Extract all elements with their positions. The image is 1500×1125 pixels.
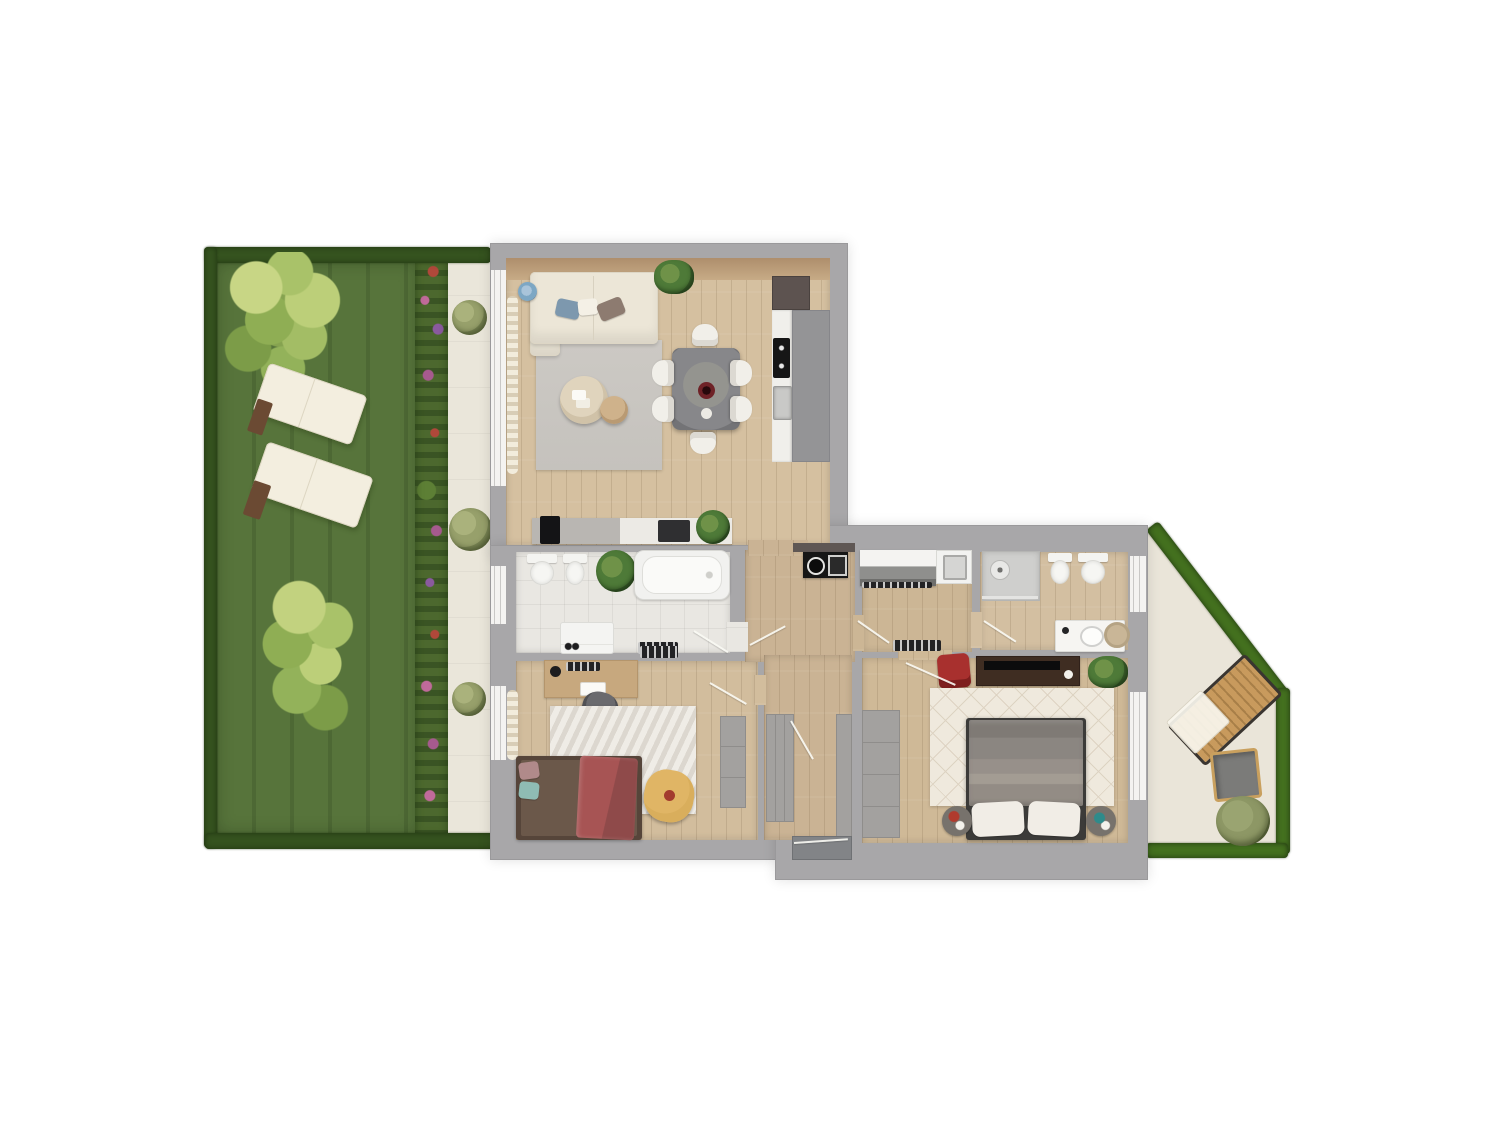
living-plant-shelf [654,260,694,294]
utility-shelf [893,640,941,651]
hall-counter-steel-square [828,555,847,576]
ensuite-bidet-bowl [1051,560,1070,584]
window-master-terrace [1130,692,1146,800]
opening-bathroom-1-door [726,622,748,652]
kitchen-cooktop [773,338,790,378]
path-bush-top [452,300,487,335]
nightstand-left [942,806,972,836]
nightstand-right [1086,806,1116,836]
ensuite-bidet [1048,553,1072,585]
window-bathroom-1 [491,566,506,624]
single-bed-blanket-red [576,756,638,841]
double-bed-duvet [969,720,1083,806]
terrace-hedge-right [1276,688,1290,854]
bedroom-2-radiator [640,646,678,658]
toilet [527,554,557,586]
hall-counter-burner [807,557,825,575]
hall-backwall-strip [793,543,855,552]
path-bush-bottom [452,682,486,716]
flower-border [415,260,448,836]
path-bush-middle [449,508,492,551]
bedroom-2-wardrobe [720,716,746,808]
bidet-bowl [566,561,585,585]
dining-chair-right-2 [730,396,752,422]
shower [982,551,1040,601]
lowboard-plant [696,510,730,544]
dining-chair-left-2 [652,396,674,422]
utility-counter [860,550,936,586]
master-tv [984,661,1060,670]
curtain-living [507,296,518,474]
terrace-hedge-bottom [1146,843,1288,858]
ensuite-toilet [1078,553,1108,585]
window-living-left [491,270,506,486]
single-bed-pillow-teal [518,781,540,800]
utility-counter-handles [862,582,932,588]
master-wardrobe [862,710,900,838]
bidet [563,554,587,586]
coffee-table-tray [572,390,586,400]
desk-books [566,662,600,671]
terrace-shrub [1216,796,1270,846]
toilet-bowl [530,561,554,585]
bathroom-hanging-plant [596,550,636,592]
shower-glass [982,596,1038,599]
kitchen-tall-cabinet [772,276,810,310]
dining-chair-top [692,324,718,346]
ensuite-toilet-bowl [1081,560,1105,584]
dining-chair-left-1 [652,360,674,386]
double-bed-pillow-right [1027,801,1081,838]
dining-chair-bottom [690,432,716,454]
dining-chair-right-1 [730,360,752,386]
dining-plate [701,408,712,419]
garden-hedge-bottom [205,833,501,849]
lowboard-speaker [540,516,560,544]
vestibule-closet-right [836,714,852,838]
window-bedroom-2 [491,686,506,760]
desk-lamp [550,666,561,677]
garden-tree-lower [252,580,370,732]
window-ensuite-terrace [1130,556,1146,612]
kitchen-sink [773,386,792,420]
bathtub-basin [642,556,722,594]
terrace-armchair [1210,748,1263,803]
washing-machine [560,622,614,654]
ensuite-stool [1104,622,1130,648]
opening-ensuite-door [970,612,982,648]
single-bed-pillow-red [518,761,540,781]
double-bed-pillow-left [971,801,1025,838]
master-plant [1088,656,1128,688]
floor-lamp [518,282,537,301]
floor-plan-canvas [0,0,1500,1125]
curtain-bedroom-2 [507,690,518,760]
coffee-table-small [600,396,628,424]
kitchen-upper-strip [792,310,830,462]
pouf-emblem [664,790,675,801]
opening-bedroom-2-door [754,675,766,705]
lowboard-media-box [658,520,690,542]
ensuite-vanity-accessory [1062,627,1069,634]
vestibule-closet-left [766,714,794,822]
ensuite-vanity-sink [1080,626,1104,647]
shower-head [990,560,1010,580]
utility-sink-basin [943,555,967,580]
master-console-dish [1064,670,1073,679]
dining-bowl-red [698,382,715,399]
